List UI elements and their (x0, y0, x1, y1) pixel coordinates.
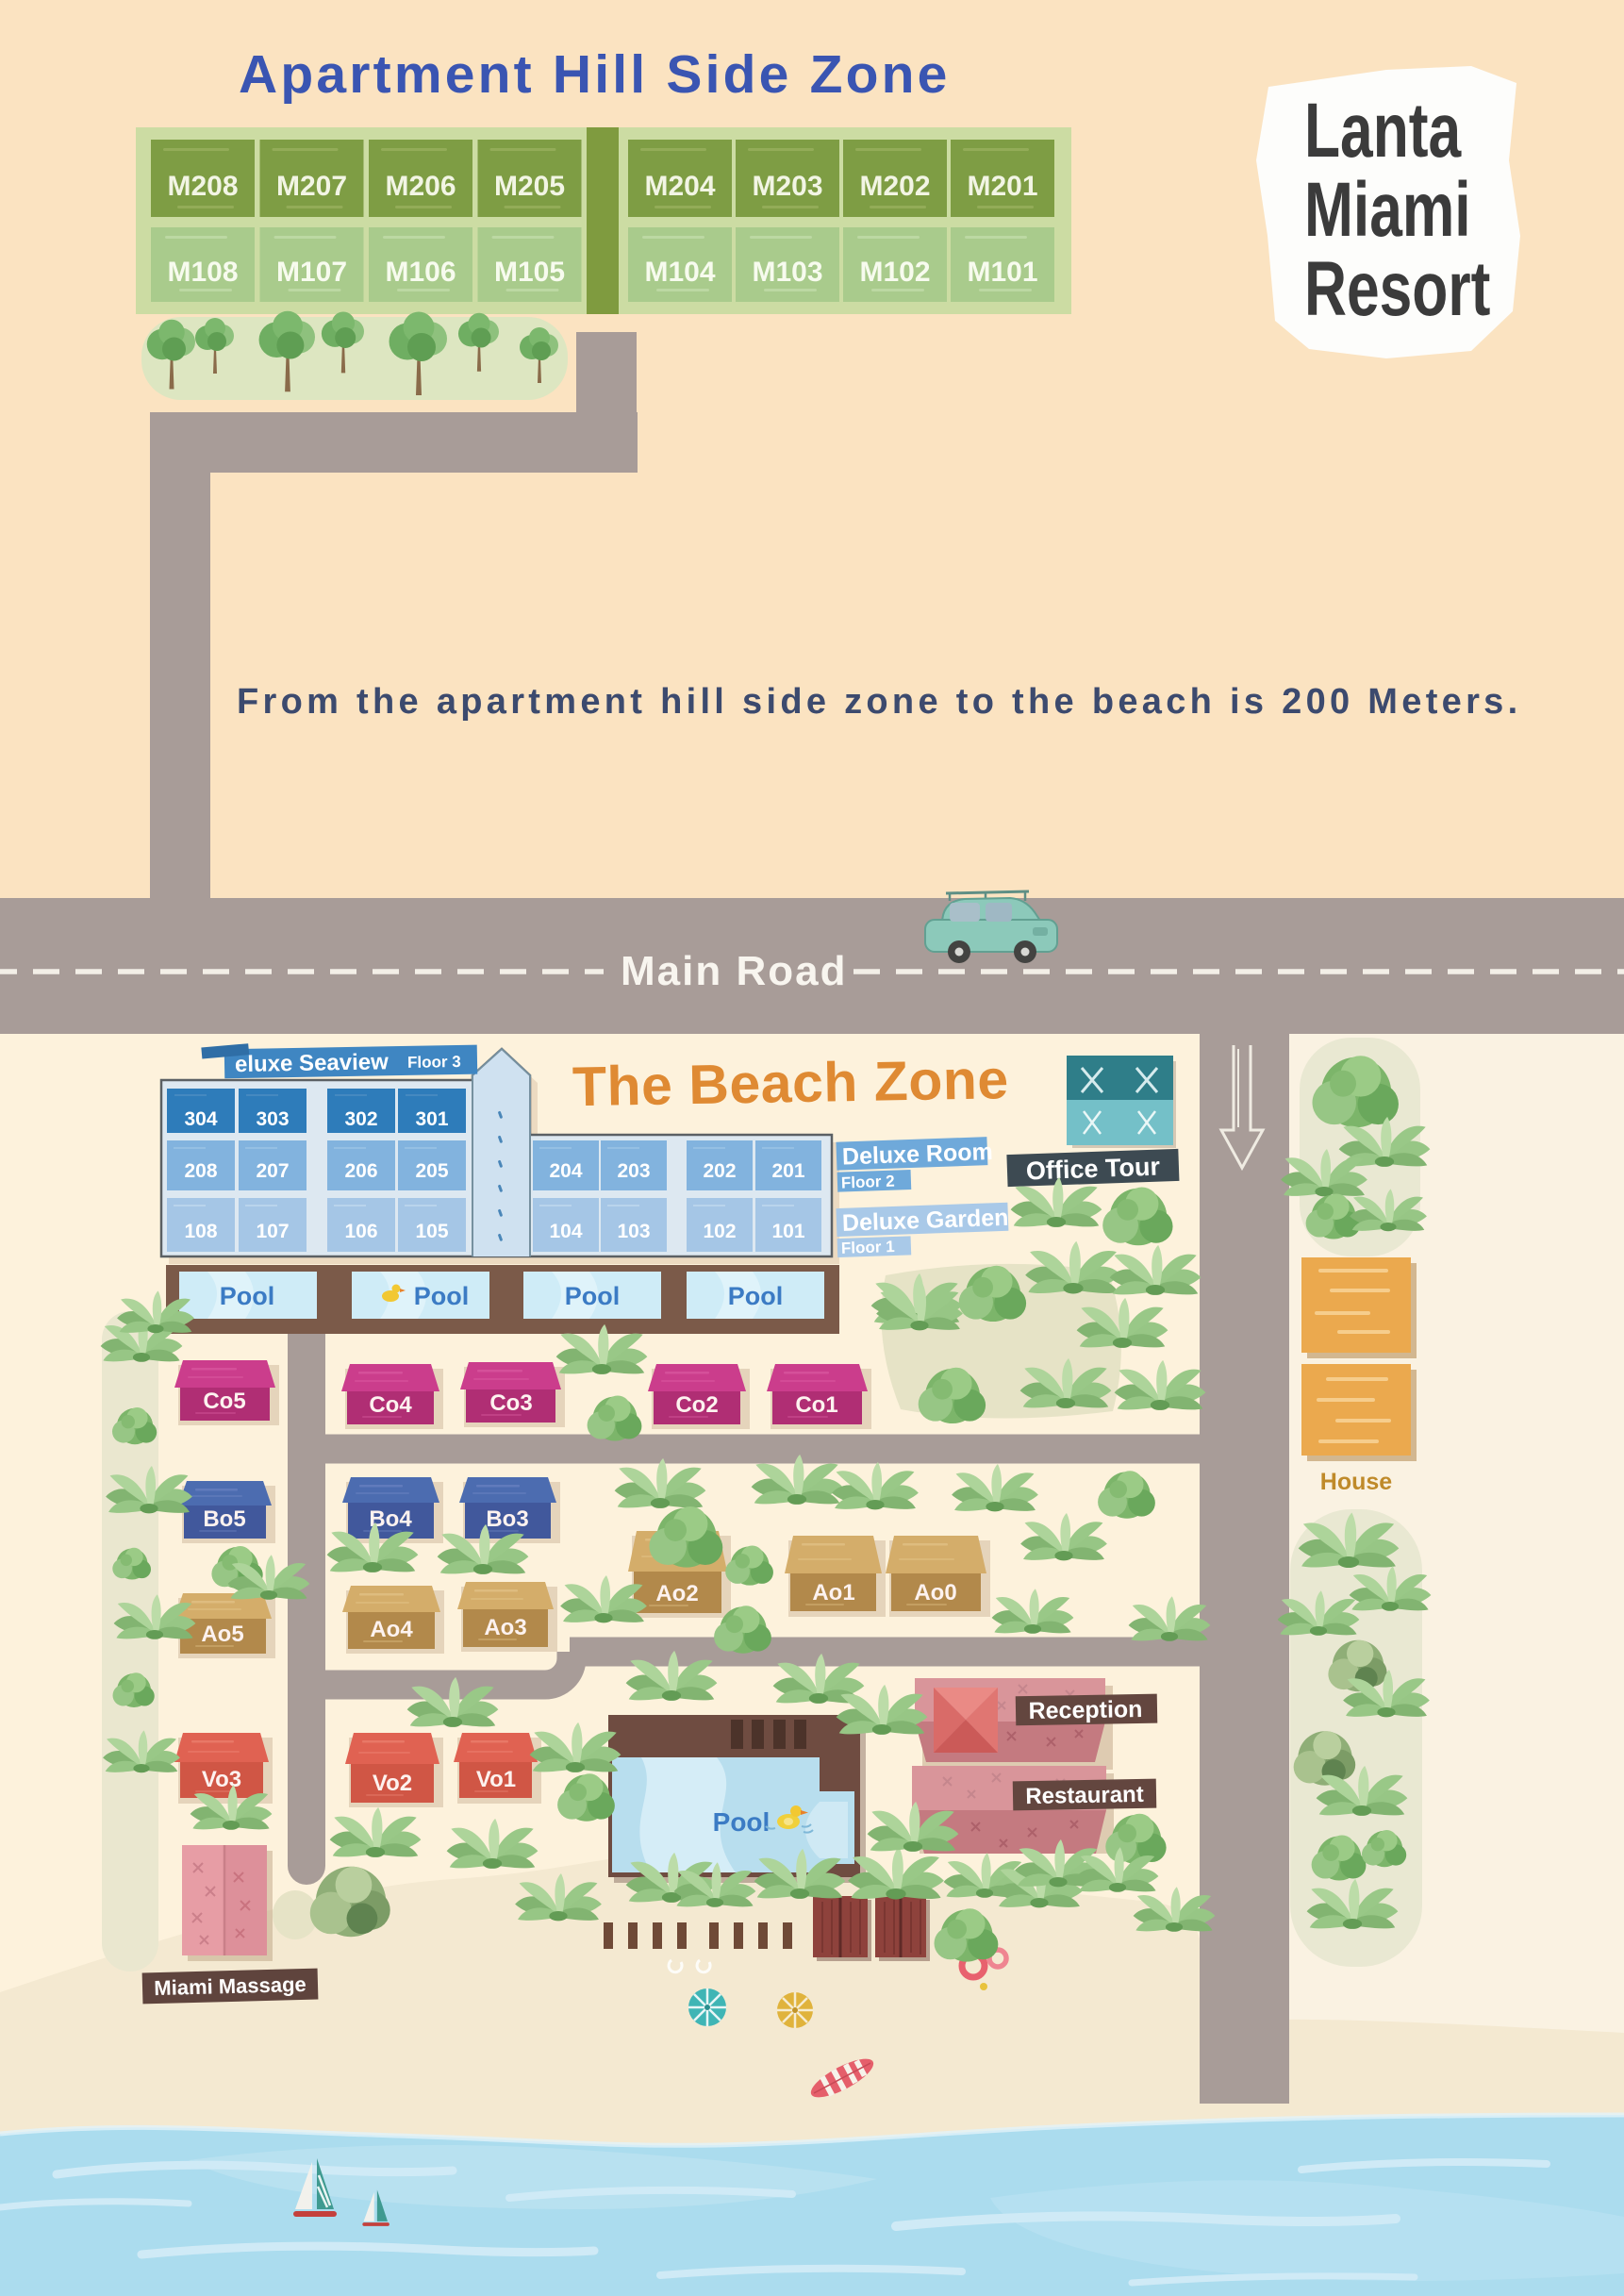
svg-text:Miami Massage: Miami Massage (154, 1972, 307, 2000)
svg-text:M107: M107 (276, 257, 347, 288)
svg-text:201: 201 (771, 1160, 804, 1182)
svg-text:eluxe Seaview: eluxe Seaview (235, 1049, 389, 1077)
svg-text:Ao0: Ao0 (914, 1580, 956, 1606)
svg-text:M103: M103 (752, 257, 822, 288)
svg-text:The Beach Zone: The Beach Zone (572, 1048, 1009, 1118)
svg-text:Floor 1: Floor 1 (841, 1238, 895, 1257)
svg-text:205: 205 (415, 1160, 448, 1182)
svg-text:M205: M205 (494, 171, 565, 202)
svg-text:Co2: Co2 (675, 1392, 718, 1418)
svg-text:M108: M108 (167, 257, 238, 288)
svg-text:M106: M106 (385, 257, 456, 288)
svg-text:Co5: Co5 (203, 1389, 245, 1414)
svg-text:103: 103 (617, 1221, 650, 1242)
svg-text:Floor 3: Floor 3 (407, 1053, 461, 1072)
svg-text:M105: M105 (494, 257, 565, 288)
svg-text:Apartment Hill Side Zone: Apartment Hill Side Zone (239, 44, 951, 105)
svg-text:Pool: Pool (220, 1282, 275, 1310)
svg-text:Pool: Pool (713, 1807, 771, 1837)
svg-text:M102: M102 (859, 257, 930, 288)
svg-text:M206: M206 (385, 171, 456, 202)
svg-text:108: 108 (184, 1221, 217, 1242)
svg-text:107: 107 (256, 1221, 289, 1242)
svg-text:Lanta: Lanta (1304, 88, 1462, 174)
svg-text:Bo5: Bo5 (203, 1506, 245, 1532)
svg-text:From the apartment hill side z: From the apartment hill side zone to the… (237, 682, 1521, 722)
svg-text:Office Tour: Office Tour (1025, 1153, 1160, 1186)
svg-text:105: 105 (415, 1221, 448, 1242)
svg-text:Reception: Reception (1028, 1696, 1142, 1724)
svg-text:House: House (1320, 1469, 1393, 1495)
svg-text:Floor 2: Floor 2 (841, 1173, 895, 1192)
svg-text:M101: M101 (967, 257, 1037, 288)
svg-text:Restaurant: Restaurant (1025, 1782, 1144, 1809)
svg-text:M201: M201 (967, 171, 1037, 202)
svg-text:Co4: Co4 (369, 1392, 412, 1418)
svg-text:Co3: Co3 (489, 1390, 532, 1416)
svg-text:202: 202 (703, 1160, 736, 1182)
svg-text:204: 204 (549, 1160, 582, 1182)
svg-text:M203: M203 (752, 171, 822, 202)
svg-text:Miami: Miami (1304, 167, 1471, 253)
svg-text:102: 102 (703, 1221, 736, 1242)
svg-text:303: 303 (256, 1108, 289, 1130)
svg-text:Vo1: Vo1 (476, 1767, 516, 1792)
svg-text:106: 106 (344, 1221, 377, 1242)
svg-text:208: 208 (184, 1160, 217, 1182)
svg-text:Deluxe Room: Deluxe Room (842, 1139, 994, 1171)
svg-text:Bo3: Bo3 (486, 1506, 528, 1532)
svg-text:Pool: Pool (565, 1282, 621, 1310)
svg-text:Ao1: Ao1 (812, 1580, 854, 1606)
svg-text:Ao2: Ao2 (655, 1581, 698, 1606)
svg-text:M104: M104 (644, 257, 715, 288)
svg-text:206: 206 (344, 1160, 377, 1182)
svg-text:203: 203 (617, 1160, 650, 1182)
svg-text:104: 104 (549, 1221, 582, 1242)
svg-text:Pool: Pool (414, 1282, 470, 1310)
svg-text:Co1: Co1 (795, 1392, 837, 1418)
svg-text:Ao3: Ao3 (484, 1615, 526, 1640)
svg-text:304: 304 (184, 1108, 217, 1130)
svg-text:Pool: Pool (728, 1282, 784, 1310)
svg-text:Resort: Resort (1304, 246, 1490, 332)
svg-text:M207: M207 (276, 171, 347, 202)
svg-text:M204: M204 (644, 171, 715, 202)
svg-text:M202: M202 (859, 171, 930, 202)
svg-text:Ao4: Ao4 (370, 1617, 413, 1642)
svg-text:302: 302 (344, 1108, 377, 1130)
svg-text:Ao5: Ao5 (201, 1622, 243, 1647)
svg-text:101: 101 (771, 1221, 804, 1242)
svg-text:M208: M208 (167, 171, 238, 202)
svg-text:207: 207 (256, 1160, 289, 1182)
svg-text:301: 301 (415, 1108, 448, 1130)
svg-text:Vo2: Vo2 (373, 1771, 412, 1796)
svg-text:Vo3: Vo3 (202, 1767, 241, 1792)
svg-text:Main Road: Main Road (621, 948, 847, 994)
